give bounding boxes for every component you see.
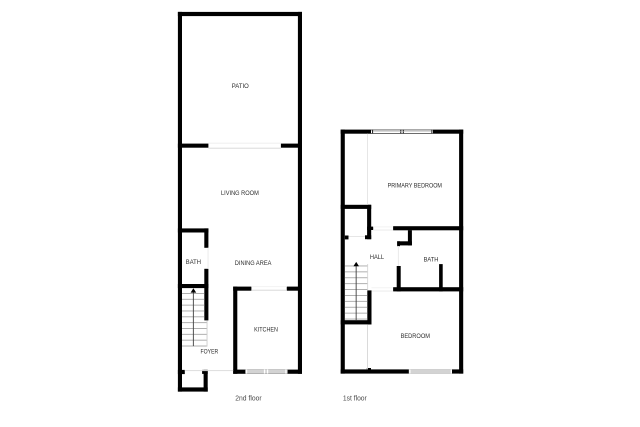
svg-text:KITCHEN: KITCHEN	[254, 327, 278, 334]
svg-text:DINING AREA: DINING AREA	[235, 260, 272, 267]
svg-text:PRIMARY BEDROOM: PRIMARY BEDROOM	[388, 182, 442, 189]
svg-text:BEDROOM: BEDROOM	[401, 333, 430, 340]
svg-text:HALL: HALL	[370, 254, 384, 261]
svg-text:BATH: BATH	[186, 259, 201, 266]
svg-text:1st floor: 1st floor	[343, 393, 367, 402]
svg-text:BATH: BATH	[424, 257, 439, 264]
svg-text:2nd floor: 2nd floor	[235, 393, 262, 402]
svg-text:FOYER: FOYER	[201, 348, 219, 355]
svg-text:LIVING ROOM: LIVING ROOM	[221, 190, 259, 197]
svg-text:PATIO: PATIO	[232, 83, 249, 90]
